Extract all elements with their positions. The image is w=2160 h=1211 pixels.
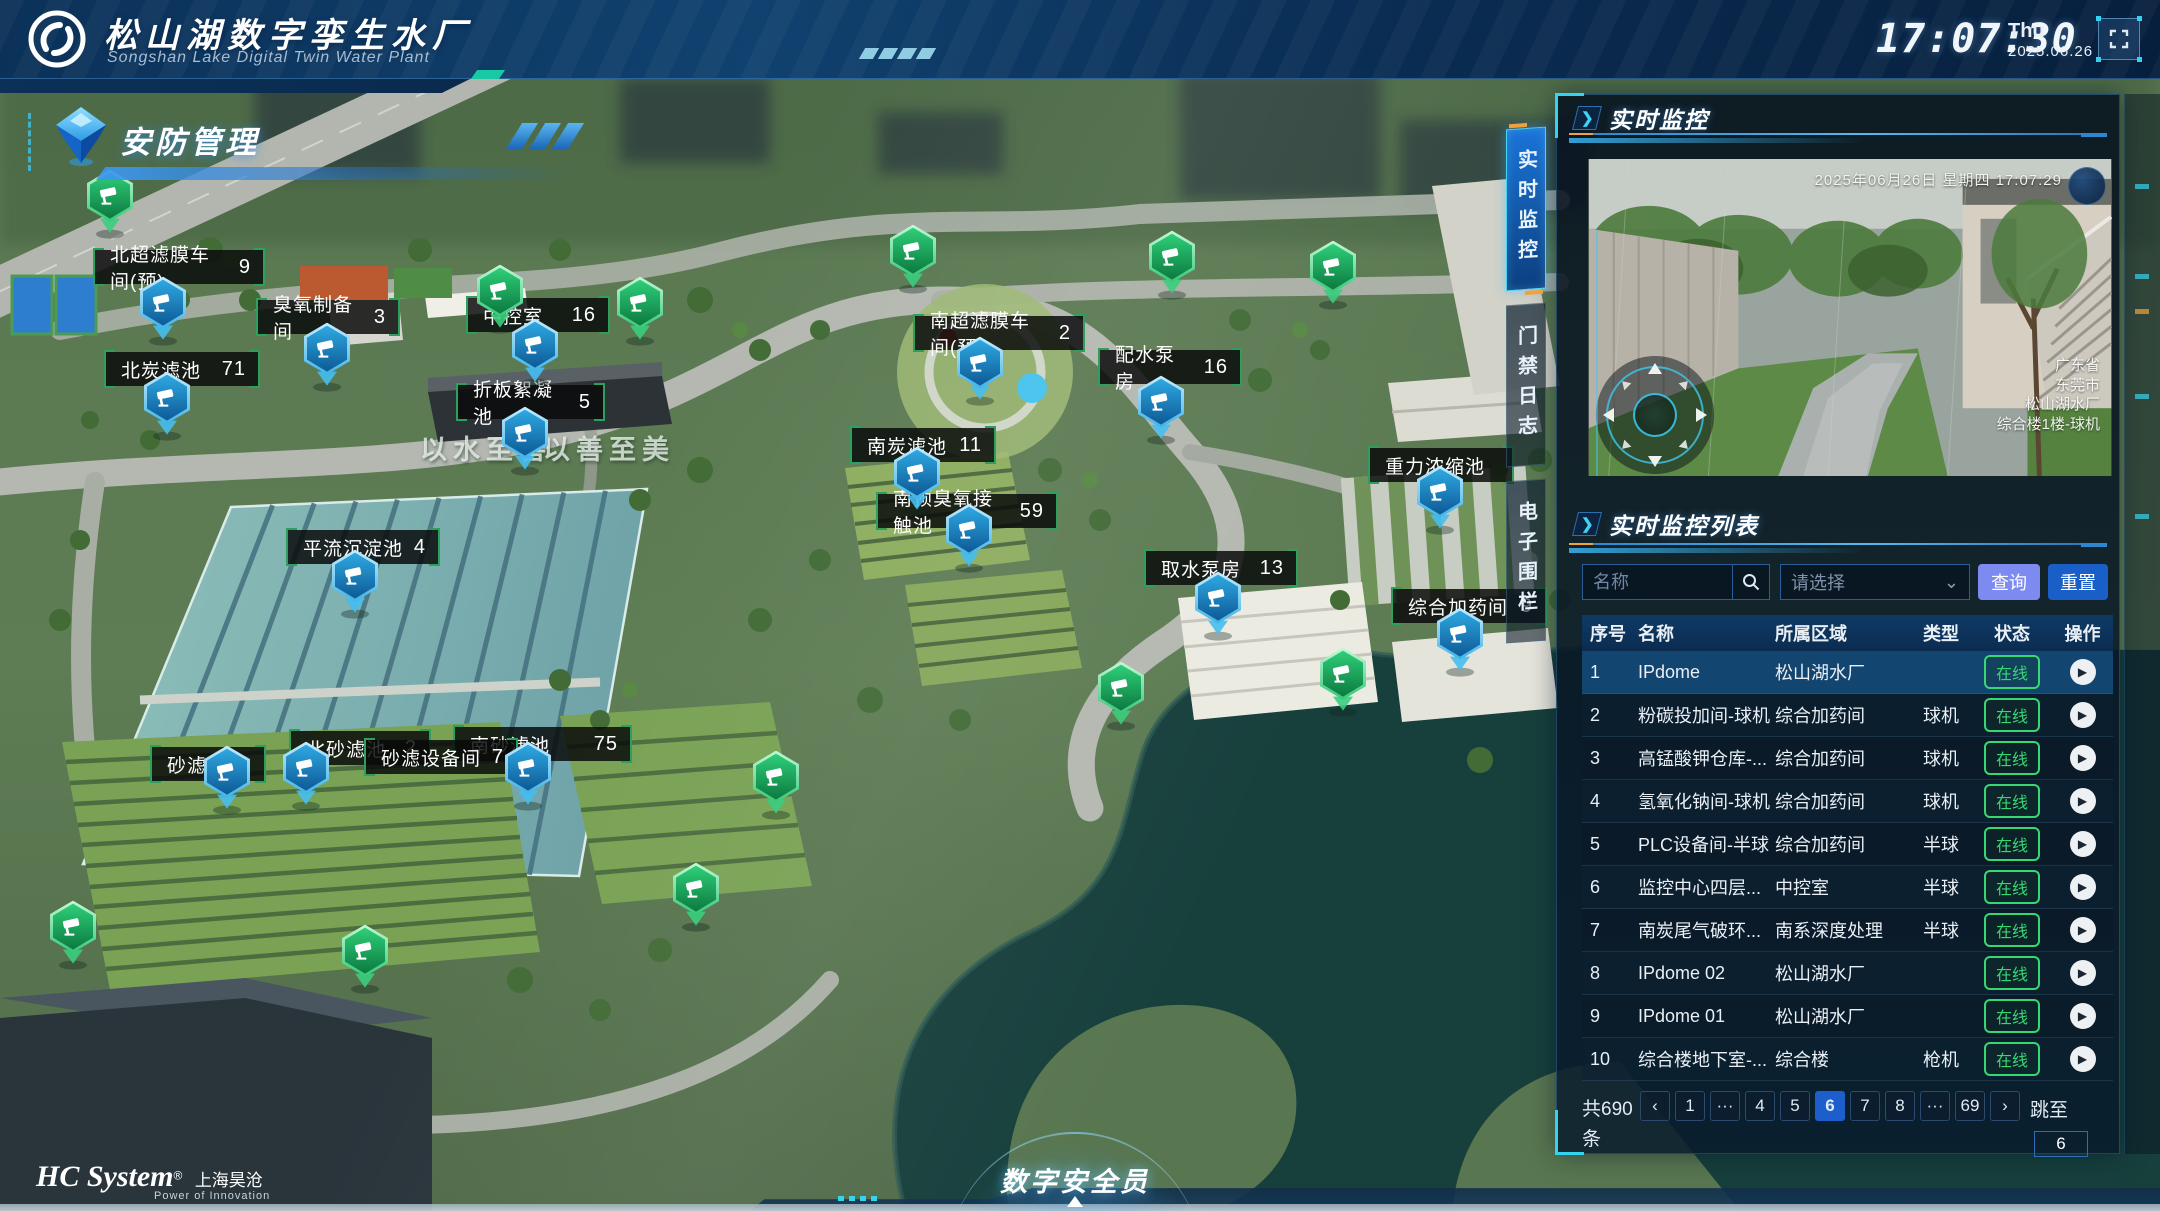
camera-marker[interactable] (1415, 466, 1465, 534)
side-tab[interactable]: 门禁日志 (1506, 303, 1546, 468)
table-row[interactable]: 8 IPdome 02 松山湖水厂 在线 ▶ (1582, 952, 2113, 995)
play-button[interactable]: ▶ (2070, 960, 2096, 986)
camera-count: 5 (579, 391, 591, 414)
row-index: 7 (1582, 920, 1638, 941)
page-button[interactable]: 5 (1780, 1091, 1810, 1121)
camera-area: 松山湖水厂 (1775, 1003, 1910, 1029)
section-title: 安防管理 (120, 117, 260, 162)
top-header: 松山湖数字孪生水厂 Songshan Lake Digital Twin Wat… (0, 0, 2160, 79)
company-logo-icon (26, 8, 88, 70)
chevron-right-icon: ❯ (1572, 106, 1602, 130)
camera-marker[interactable] (340, 925, 390, 993)
watermark-line: 广东省 (1997, 356, 2100, 376)
play-button[interactable]: ▶ (2070, 917, 2096, 943)
page-button[interactable]: 4 (1745, 1091, 1775, 1121)
op-cell: ▶ (2052, 659, 2113, 685)
camera-count: 13 (1260, 557, 1284, 580)
camera-count: 4 (414, 536, 426, 559)
camera-marker[interactable] (202, 746, 252, 814)
camera-count: 16 (1204, 356, 1228, 379)
camera-type: 枪机 (1910, 1046, 1972, 1072)
expand-up-arrow-icon[interactable] (1067, 1196, 1083, 1207)
status-badge: 在线 (1984, 956, 2040, 990)
watermark-line: 东莞市 (1997, 376, 2100, 396)
camera-marker[interactable] (955, 337, 1005, 405)
camera-name: 监控中心四层... (1638, 874, 1775, 900)
status-cell: 在线 (1972, 698, 2052, 732)
brand-name-cn: 上海昊沧 (195, 1171, 263, 1190)
brand-slogan: Power of Innovation (154, 1190, 270, 1202)
page-button[interactable]: 1 (1675, 1091, 1705, 1121)
table-row[interactable]: 5 PLC设备间-半球 综合加药间 半球 在线 ▶ (1582, 823, 2113, 866)
camera-count: 16 (572, 304, 596, 327)
monitor-section-header: ❯ 实时监控 (1575, 101, 1709, 135)
status-badge: 在线 (1984, 999, 2040, 1033)
camera-name: IPdome 02 (1638, 963, 1775, 984)
camera-type: 半球 (1910, 917, 1972, 943)
side-tab-label: 门禁日志 (1512, 324, 1541, 446)
panel-right-frame (2124, 94, 2160, 1154)
status-cell: 在线 (1972, 999, 2052, 1033)
camera-marker[interactable] (1318, 648, 1368, 716)
camera-count: 59 (1020, 500, 1044, 523)
side-tab-label: 电子围栏 (1512, 500, 1541, 622)
camera-marker[interactable] (1136, 376, 1186, 444)
app-root: 以水至善 以善至美 北超滤膜车间(预) 9 臭氧制备间 3 北炭滤池 71 中控… (0, 0, 2160, 1211)
op-cell: ▶ (2052, 831, 2113, 857)
status-cell: 在线 (1972, 870, 2052, 904)
row-index: 2 (1582, 705, 1638, 726)
camera-count: 75 (594, 733, 618, 756)
header-slashes-deco (862, 48, 933, 59)
camera-count: 3 (374, 306, 386, 329)
op-cell: ▶ (2052, 960, 2113, 986)
camera-marker[interactable] (48, 901, 98, 969)
op-cell: ▶ (2052, 917, 2113, 943)
camera-count: 2 (1059, 322, 1071, 345)
side-tab[interactable]: 电子围栏 (1506, 479, 1546, 644)
ptz-up-arrow[interactable] (1648, 363, 1662, 374)
play-button[interactable]: ▶ (2070, 659, 2096, 685)
section-underline-deco (96, 167, 566, 180)
page-button[interactable]: 6 (1815, 1091, 1845, 1121)
camera-marker[interactable] (1096, 662, 1146, 730)
search-icon (1741, 572, 1761, 592)
camera-marker[interactable] (510, 319, 560, 387)
play-button[interactable]: ▶ (2070, 702, 2096, 728)
play-button[interactable]: ▶ (2070, 1046, 2096, 1072)
camera-area: 综合楼 (1775, 1046, 1910, 1072)
camera-type: 半球 (1910, 831, 1972, 857)
camera-marker[interactable] (1193, 572, 1243, 640)
op-cell: ▶ (2052, 874, 2113, 900)
camera-marker[interactable] (138, 277, 188, 345)
weekday-label: Thu (2008, 20, 2093, 43)
camera-area: 综合加药间 (1775, 745, 1910, 771)
status-badge: 在线 (1984, 913, 2040, 947)
camera-name: 粉碳投加间-球机 (1638, 702, 1775, 728)
status-badge: 在线 (1984, 870, 2040, 904)
col-status: 状态 (1972, 620, 2052, 646)
page-subtitle: Songshan Lake Digital Twin Water Plant (107, 49, 430, 67)
camera-count: 11 (959, 434, 982, 457)
op-cell: ▶ (2052, 745, 2113, 771)
section-banner: 安防管理 (0, 105, 620, 195)
status-cell: 在线 (1972, 741, 2052, 775)
col-name: 名称 (1638, 620, 1775, 646)
camera-name: 综合楼地下室-... (1638, 1046, 1775, 1072)
camera-marker[interactable] (671, 863, 721, 931)
camera-type: 球机 (1910, 788, 1972, 814)
status-cell: 在线 (1972, 827, 2052, 861)
fullscreen-button[interactable] (2098, 18, 2140, 60)
feed-frame-deco (1596, 229, 1608, 476)
pagination: 共690条 ‹ 1 ··· 4 5 6 7 8 ··· (1582, 1089, 2113, 1155)
header-teal-chip (471, 70, 505, 79)
jump-to-label: 跳至 (2030, 1095, 2068, 1122)
page-button[interactable]: 8 (1885, 1091, 1915, 1121)
op-cell: ▶ (2052, 788, 2113, 814)
camera-area: 松山湖水厂 (1775, 960, 1910, 986)
query-button[interactable]: 查询 (1978, 564, 2040, 600)
fullscreen-icon (2107, 27, 2131, 51)
camera-marker[interactable] (751, 751, 801, 819)
search-row: 请选择 ⌄ 查询 重置 (1582, 564, 2113, 600)
table-row[interactable]: 1 IPdome 松山湖水厂 在线 ▶ (1582, 651, 2113, 694)
gem-icon (54, 105, 108, 167)
col-op: 操作 (2052, 620, 2113, 646)
list-section-header: ❯ 实时监控列表 (1575, 507, 1759, 541)
status-badge: 在线 (1984, 741, 2040, 775)
chevron-right-icon: ❯ (1572, 512, 1602, 536)
watermark-line: 综合楼1楼-球机 (1997, 415, 2100, 435)
row-index: 6 (1582, 877, 1638, 898)
reset-button[interactable]: 重置 (2048, 564, 2108, 600)
area-label[interactable]: 砂滤设备间 7 (366, 740, 516, 774)
camera-name: 氢氧化钠间-球机 (1638, 788, 1775, 814)
page-button[interactable]: 7 (1850, 1091, 1880, 1121)
camera-count: 71 (222, 358, 246, 381)
camera-name: IPdome 01 (1638, 1006, 1775, 1027)
camera-area: 综合加药间 (1775, 831, 1910, 857)
vendor-brand: HC System® 上海昊沧 Power of Innovation (36, 1160, 270, 1202)
total-count: 共690条 (1582, 1095, 1638, 1156)
camera-vendor-logo (2068, 167, 2106, 205)
status-cell: 在线 (1972, 956, 2052, 990)
area-name: 砂滤设备间 (381, 744, 481, 771)
row-index: 5 (1582, 834, 1638, 855)
page-buttons: ‹ 1 ··· 4 5 6 7 8 ··· 69 (1640, 1091, 2020, 1121)
status-badge: 在线 (1984, 698, 2040, 732)
play-button[interactable]: ▶ (2070, 1003, 2096, 1029)
camera-type: 球机 (1910, 702, 1972, 728)
status-badge: 在线 (1984, 655, 2040, 689)
row-index: 8 (1582, 963, 1638, 984)
camera-table: 序号 名称 所属区域 类型 状态 操作 1 IPdome 松山湖水厂 在线 ▶ … (1582, 615, 2113, 1081)
row-index: 10 (1582, 1049, 1638, 1070)
camera-marker[interactable] (888, 225, 938, 293)
page-button[interactable]: ··· (1920, 1091, 1950, 1121)
camera-name: 南炭尾气破环... (1638, 917, 1775, 943)
camera-area: 松山湖水厂 (1775, 659, 1910, 685)
camera-name: PLC设备间-半球 (1638, 831, 1775, 857)
status-cell: 在线 (1972, 1042, 2052, 1076)
camera-name: IPdome (1638, 662, 1775, 683)
table-row[interactable]: 7 南炭尾气破环... 南系深度处理 半球 在线 ▶ (1582, 909, 2113, 952)
camera-name: 高锰酸钾仓库-... (1638, 745, 1775, 771)
list-title: 实时监控列表 (1609, 507, 1759, 541)
table-row[interactable]: 4 氢氧化钠间-球机 综合加药间 球机 在线 ▶ (1582, 780, 2113, 823)
prev-page-button[interactable]: ‹ (1640, 1091, 1670, 1121)
ptz-control[interactable] (1596, 356, 1714, 474)
op-cell: ▶ (2052, 1003, 2113, 1029)
table-row[interactable]: 2 粉碳投加间-球机 综合加药间 球机 在线 ▶ (1582, 694, 2113, 737)
area-select[interactable]: 请选择 ⌄ (1780, 564, 1970, 600)
ptz-right-arrow[interactable] (1696, 408, 1707, 422)
section-slashes-deco (514, 123, 576, 149)
jump-page-input[interactable] (2034, 1131, 2088, 1157)
play-button[interactable]: ▶ (2070, 831, 2096, 857)
camera-marker[interactable] (1308, 241, 1358, 309)
row-index: 4 (1582, 791, 1638, 812)
play-button[interactable]: ▶ (2070, 788, 2096, 814)
table-header-row: 序号 名称 所属区域 类型 状态 操作 (1582, 615, 2113, 651)
monitor-panel: ❯ 实时监控 (1556, 94, 2120, 1154)
camera-area: 综合加药间 (1775, 702, 1910, 728)
bottom-center-badge[interactable]: 数字安全员 (935, 1128, 1215, 1211)
status-badge: 在线 (1984, 784, 2040, 818)
date-label: 2025.06.26 (2008, 43, 2093, 60)
side-tab-group: 实时监控 门禁日志 电子围栏 (1506, 128, 1546, 656)
row-index: 3 (1582, 748, 1638, 769)
table-row[interactable]: 3 高锰酸钾仓库-... 综合加药间 球机 在线 ▶ (1582, 737, 2113, 780)
ground-motto-text: 以善至美 (543, 428, 675, 467)
search-button[interactable] (1732, 564, 1770, 600)
camera-marker[interactable] (615, 277, 665, 345)
ptz-down-arrow[interactable] (1648, 456, 1662, 467)
table-row[interactable]: 9 IPdome 01 松山湖水厂 在线 ▶ (1582, 995, 2113, 1038)
camera-marker[interactable] (500, 407, 550, 475)
page-button[interactable]: ··· (1710, 1091, 1740, 1121)
camera-marker[interactable] (330, 550, 380, 618)
next-page-button[interactable]: › (1990, 1091, 2020, 1121)
col-type: 类型 (1910, 620, 1972, 646)
name-search-input[interactable] (1582, 564, 1732, 600)
col-no: 序号 (1582, 620, 1638, 646)
digital-safety-officer-label: 数字安全员 (935, 1160, 1215, 1199)
camera-area: 综合加药间 (1775, 788, 1910, 814)
camera-marker[interactable] (892, 447, 942, 515)
op-cell: ▶ (2052, 1046, 2113, 1072)
divider (1569, 543, 2107, 555)
camera-marker[interactable] (944, 504, 994, 572)
camera-marker[interactable] (142, 372, 192, 440)
camera-marker[interactable] (302, 323, 352, 391)
op-cell: ▶ (2052, 702, 2113, 728)
camera-marker[interactable] (1147, 231, 1197, 299)
play-button[interactable]: ▶ (2070, 874, 2096, 900)
status-cell: 在线 (1972, 913, 2052, 947)
camera-count: 9 (239, 256, 251, 279)
side-tab-label: 实时监控 (1512, 148, 1541, 270)
chevron-down-icon: ⌄ (1944, 577, 1959, 587)
watermark-line: 松山湖水厂 (1997, 395, 2100, 415)
col-area: 所属区域 (1775, 620, 1910, 646)
row-index: 9 (1582, 1006, 1638, 1027)
live-video-feed: 2025年06月26日 星期四 17:07:29 广东省 东莞市 松山湖水厂 综… (1588, 159, 2112, 476)
video-timestamp: 2025年06月26日 星期四 17:07:29 (1815, 169, 2062, 190)
select-placeholder: 请选择 (1791, 569, 1845, 595)
dashed-line-deco (28, 113, 31, 171)
video-watermark: 广东省 东莞市 松山湖水厂 综合楼1楼-球机 (1997, 356, 2100, 434)
brand-name: HC System (36, 1160, 174, 1193)
table-row[interactable]: 6 监控中心四层... 中控室 半球 在线 ▶ (1582, 866, 2113, 909)
status-badge: 在线 (1984, 1042, 2040, 1076)
monitor-title: 实时监控 (1609, 101, 1709, 135)
camera-type: 半球 (1910, 874, 1972, 900)
ptz-hub[interactable] (1633, 393, 1677, 437)
status-cell: 在线 (1972, 655, 2052, 689)
date-block: Thu 2025.06.26 (2008, 20, 2093, 60)
bottom-dots-deco (838, 1196, 877, 1201)
page-button[interactable]: 69 (1955, 1091, 1985, 1121)
camera-marker[interactable] (503, 742, 553, 810)
side-tab[interactable]: 实时监控 (1506, 127, 1546, 292)
play-button[interactable]: ▶ (2070, 745, 2096, 771)
camera-type: 球机 (1910, 745, 1972, 771)
divider (1569, 133, 2107, 145)
camera-area: 南系深度处理 (1775, 917, 1910, 943)
status-badge: 在线 (1984, 827, 2040, 861)
table-row[interactable]: 10 综合楼地下室-... 综合楼 枪机 在线 ▶ (1582, 1038, 2113, 1081)
status-cell: 在线 (1972, 784, 2052, 818)
camera-marker[interactable] (281, 742, 331, 810)
camera-marker[interactable] (1435, 608, 1485, 676)
row-index: 1 (1582, 662, 1638, 683)
camera-area: 中控室 (1775, 874, 1910, 900)
